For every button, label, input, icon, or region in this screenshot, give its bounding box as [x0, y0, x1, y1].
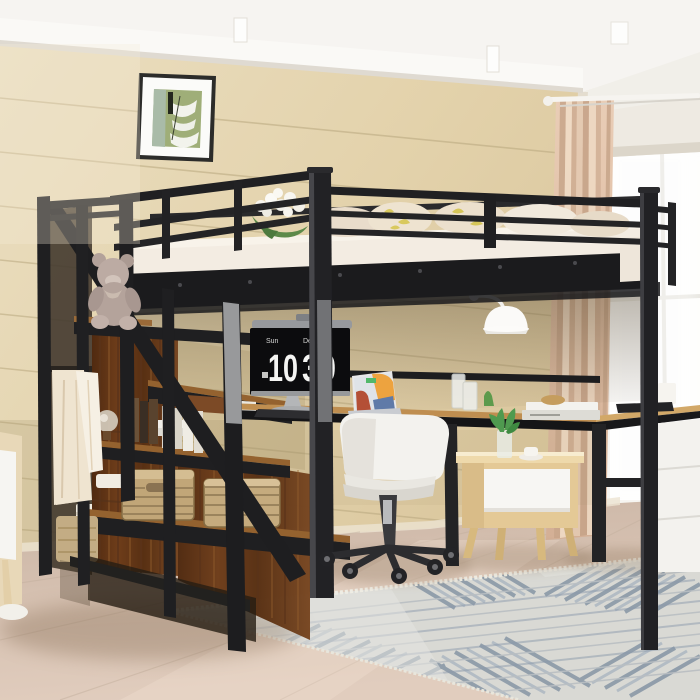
- svg-text:10: 10: [268, 348, 298, 390]
- svg-text:Sun: Sun: [266, 338, 279, 345]
